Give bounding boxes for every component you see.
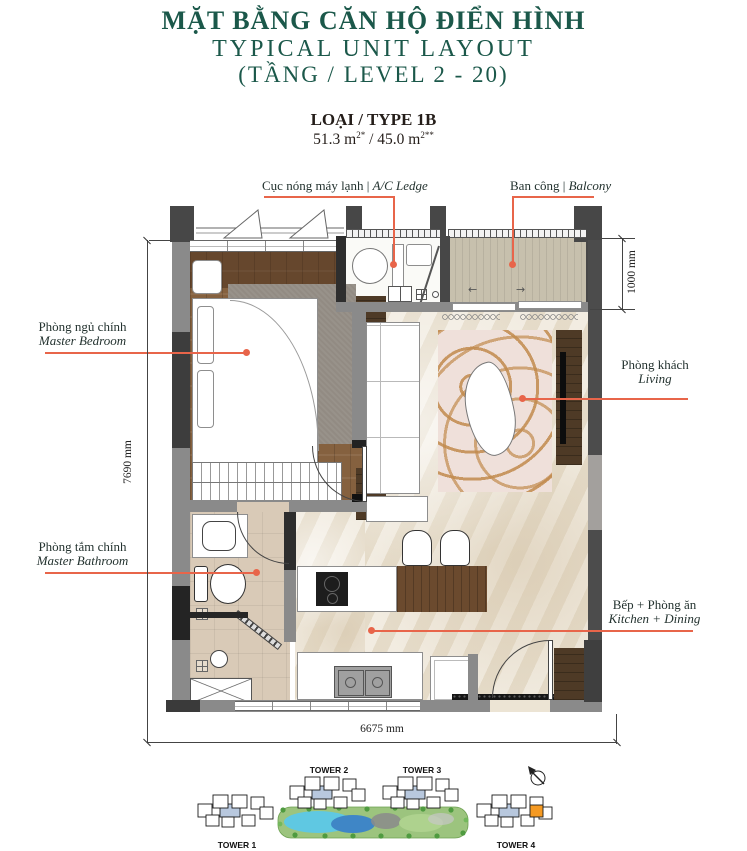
leader-bedroom-dot: [243, 349, 250, 356]
slide-arrow-left: ←: [468, 283, 477, 296]
wall-ac-balcony: [440, 236, 450, 302]
dim-line-balcony: [622, 238, 623, 310]
bedroom-window: [190, 240, 346, 252]
ac-equipment-box: [406, 244, 432, 266]
dim-depth-label: 7690 mm: [122, 427, 134, 497]
dim-line-width: [147, 742, 617, 743]
tower-1-label: TOWER 1: [218, 840, 257, 850]
dim-width-label: 6675 mm: [322, 723, 442, 735]
floor-drain: [196, 660, 208, 672]
washer-outlet: [388, 286, 412, 302]
floor-plan: ← →: [0, 0, 747, 760]
callout-living: Phòng kháchLiving: [600, 358, 710, 385]
tower-1-footprint: [198, 795, 273, 827]
shower-head: [210, 650, 228, 668]
toilet-bowl: [210, 564, 246, 604]
highlighted-unit: [530, 805, 543, 817]
wall-bath-kitchen: [284, 570, 296, 642]
callout-kitchen-dining: Bếp + Phòng ănKitchen + Dining: [592, 598, 717, 625]
column: [170, 206, 194, 242]
dining-chair: [402, 530, 432, 566]
leader-bathroom-dot: [253, 569, 260, 576]
dim-ext: [149, 240, 172, 241]
ottoman: [366, 496, 428, 522]
floor-plan-page: MẶT BẰNG CĂN HỘ ĐIỂN HÌNH TYPICAL UNIT L…: [0, 0, 747, 851]
wall-bedroom-ac: [336, 236, 346, 302]
wall-shower-stub: [190, 612, 248, 618]
callout-master-bedroom: Phòng ngủ chínhMaster Bedroom: [25, 320, 140, 347]
nightstand: [192, 260, 222, 294]
wall-right-upper: [588, 240, 602, 455]
pillow: [197, 370, 214, 428]
wall-entry-right: [584, 640, 602, 702]
entry-door-gap: [490, 700, 550, 712]
leader-ac-v: [393, 196, 395, 262]
sink-drain: [372, 677, 383, 688]
leader-kitchen: [372, 630, 693, 632]
tower-2-label: TOWER 2: [310, 765, 349, 775]
landscape-pool: [278, 805, 469, 838]
bedroom-door-leaf: [362, 446, 367, 502]
leader-kitchen-dot: [368, 627, 375, 634]
sliding-door-panel: [452, 303, 516, 311]
shoe-cabinet: [554, 648, 586, 700]
leader-balcony-v: [512, 196, 514, 262]
leader-bathroom: [45, 572, 257, 574]
tower-4-label: TOWER 4: [497, 840, 536, 850]
tower-3-label: TOWER 3: [403, 765, 442, 775]
tower-3-footprint: [383, 777, 458, 809]
leader-living: [524, 398, 688, 400]
window-awning-symbols: [196, 208, 344, 240]
pillow: [197, 306, 214, 364]
leader-living-dot: [519, 395, 526, 402]
callout-ac-ledge: Cục nóng máy lạnh | A/C Ledge: [262, 179, 428, 193]
dining-chair: [440, 530, 470, 566]
tower-2-footprint: [290, 777, 365, 809]
leader-ac: [264, 196, 394, 198]
wall-left-dark: [172, 332, 190, 448]
curtain: [520, 314, 578, 321]
bathroom-sink: [202, 521, 236, 551]
curtain: [442, 314, 500, 321]
dim-ext: [602, 238, 635, 239]
entry-door-leaf: [548, 640, 553, 700]
wall-entry-stub: [468, 654, 478, 702]
balcony-railing: [448, 229, 586, 238]
dim-ext: [616, 714, 617, 744]
wall-right-window: [588, 455, 602, 530]
burner: [324, 576, 340, 592]
leader-balcony: [512, 196, 594, 198]
wall-right-mid: [588, 530, 602, 655]
wall-left: [172, 240, 190, 712]
callout-balcony: Ban công | Balcony: [510, 179, 611, 193]
kitchen-sink: [334, 666, 392, 698]
sink-drain: [345, 677, 356, 688]
leader-balcony-dot: [509, 261, 516, 268]
ac-condenser: [352, 248, 388, 284]
cooktop: [316, 572, 348, 606]
bathroom-door-gap: [237, 502, 289, 512]
callout-master-bathroom: Phòng tắm chínhMaster Bathroom: [25, 540, 140, 567]
sliding-door-panel: [518, 301, 582, 309]
dim-ext: [590, 309, 635, 310]
dining-table: [397, 566, 487, 612]
wall-bottom-corner: [166, 700, 200, 712]
wall-bedroom-living: [352, 302, 366, 448]
sofa: [366, 322, 420, 494]
wall-left-dark2: [172, 586, 190, 640]
leader-bedroom: [45, 352, 247, 354]
slide-arrow-right: →: [516, 283, 525, 296]
site-plan: TOWER 1 TOWER 2 TOWER 3 TOWER 4: [183, 762, 563, 851]
pipe-point: [432, 291, 439, 298]
dim-balcony-label: 1000 mm: [626, 240, 638, 304]
dim-line-depth: [147, 240, 148, 742]
leader-ac-dot: [390, 261, 397, 268]
bottom-window: [235, 701, 420, 711]
burner: [327, 593, 338, 604]
north-arrow-icon: [528, 766, 545, 785]
